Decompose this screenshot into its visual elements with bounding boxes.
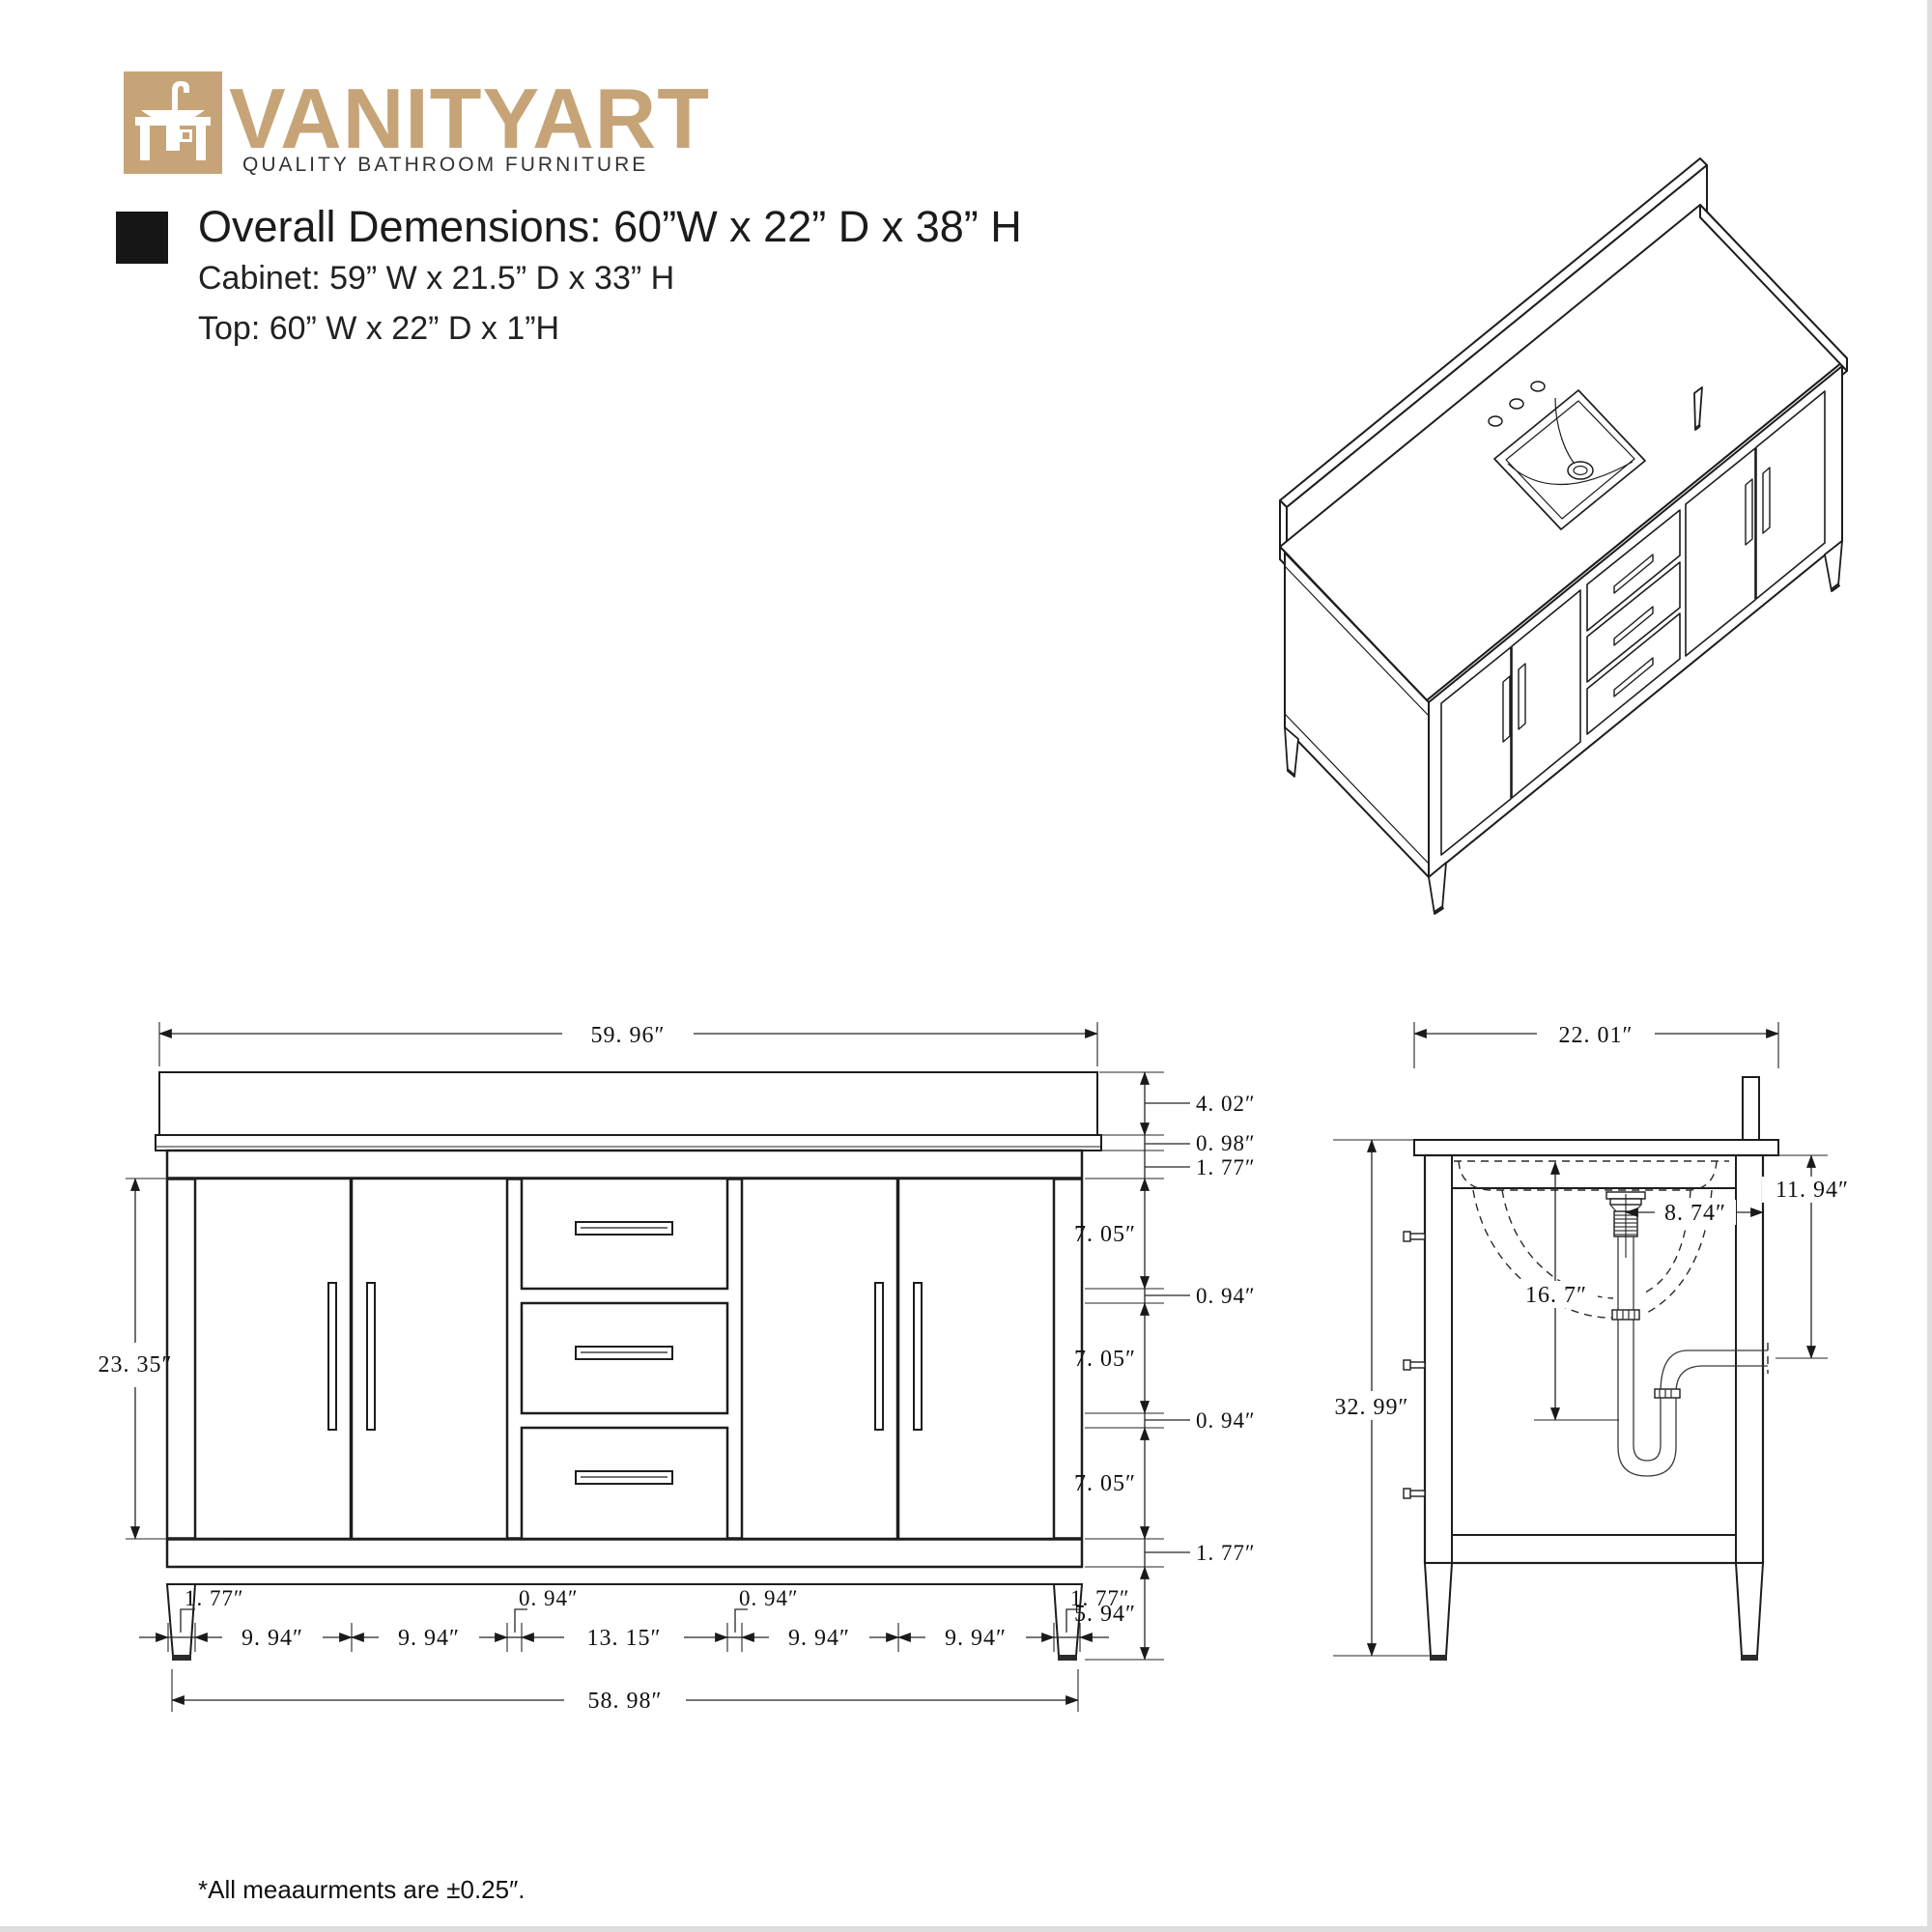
side-backsplash xyxy=(1743,1077,1759,1140)
dim-front-drawer1: 7. 05″ xyxy=(1074,1222,1136,1247)
side-countertop xyxy=(1414,1140,1778,1155)
dim-front-drawer3: 7. 05″ xyxy=(1074,1471,1136,1496)
side-handle-pins xyxy=(1404,1232,1425,1498)
dim-side-depth: 22. 01″ xyxy=(1559,1023,1634,1048)
front-door-1 xyxy=(195,1179,351,1539)
brand-logo-icon xyxy=(124,71,222,174)
dim-side-height: 32. 99″ xyxy=(1335,1395,1409,1420)
brand-tagline: QUALITY BATHROOM FURNITURE xyxy=(242,154,648,177)
front-backsplash xyxy=(159,1072,1097,1135)
dim-front-door3-w: 9. 94″ xyxy=(788,1626,850,1651)
scan-edge-right xyxy=(1927,0,1932,1932)
dim-front-door4-w: 9. 94″ xyxy=(945,1626,1007,1651)
dim-front-gap1: 0. 94″ xyxy=(1196,1284,1256,1308)
side-structure xyxy=(1404,1077,1778,1661)
dim-front-top-rail: 1. 77″ xyxy=(1196,1155,1256,1179)
spec-overall-dimensions: Overall Demensions: 60”W x 22” D x 38” H xyxy=(198,202,1022,252)
side-elevation-drawing: 22. 01″ 32. 99″ 8. 74″ 16. 7″ 11. 94″ xyxy=(1285,1005,1932,1855)
dim-side-drain-offset: 8. 74″ xyxy=(1664,1201,1726,1226)
bullet-square xyxy=(116,212,168,264)
isometric-view-drawing xyxy=(1265,135,1903,937)
side-front-leg xyxy=(1425,1563,1452,1656)
dim-front-door-height: 23. 35″ xyxy=(99,1352,173,1378)
dim-front-drawer2: 7. 05″ xyxy=(1074,1347,1136,1372)
spec-sheet-page: VANITYART QUALITY BATHROOM FURNITURE Ove… xyxy=(0,0,1932,1932)
spec-cabinet-dimensions: Cabinet: 59” W x 21.5” D x 33” H xyxy=(198,260,674,298)
front-structure xyxy=(156,1072,1101,1661)
dim-front-drawer-w: 13. 15″ xyxy=(587,1626,662,1651)
dim-front-backsplash: 4. 02″ xyxy=(1196,1092,1256,1116)
dim-front-counter: 0. 98″ xyxy=(1196,1131,1256,1155)
spec-top-dimensions: Top: 60” W x 22” D x 1”H xyxy=(198,310,559,348)
dim-front-right-divider: 0. 94″ xyxy=(739,1586,799,1610)
dim-front-door2-w: 9. 94″ xyxy=(398,1626,460,1651)
dim-front-width-top: 59. 96″ xyxy=(591,1023,666,1048)
dim-front-bottom-rail: 1. 77″ xyxy=(1196,1541,1256,1565)
footnote: *All meaaurments are ±0.25″. xyxy=(198,1875,526,1905)
dim-side-drain-depth: 16. 7″ xyxy=(1525,1283,1587,1308)
dim-front-gap2: 0. 94″ xyxy=(1196,1408,1256,1433)
front-door-3 xyxy=(742,1179,897,1539)
dim-front-left-divider: 0. 94″ xyxy=(519,1586,579,1610)
front-elevation-drawing: 59. 96″ 58. 98″ 23. 35″ xyxy=(87,1005,1294,1855)
dim-front-left-stile: 1. 77″ xyxy=(185,1586,244,1610)
scan-edge-bottom xyxy=(0,1926,1932,1932)
front-right-foot xyxy=(1058,1655,1077,1661)
dim-front-door1-w: 9. 94″ xyxy=(241,1626,303,1651)
front-left-foot xyxy=(172,1655,191,1661)
dim-front-right-stile: 1. 77″ xyxy=(1070,1586,1130,1610)
side-back-leg xyxy=(1736,1563,1763,1656)
dim-side-outlet-height: 11. 94″ xyxy=(1776,1178,1849,1203)
dim-front-width-bottom: 58. 98″ xyxy=(588,1689,663,1714)
front-countertop xyxy=(156,1135,1101,1151)
